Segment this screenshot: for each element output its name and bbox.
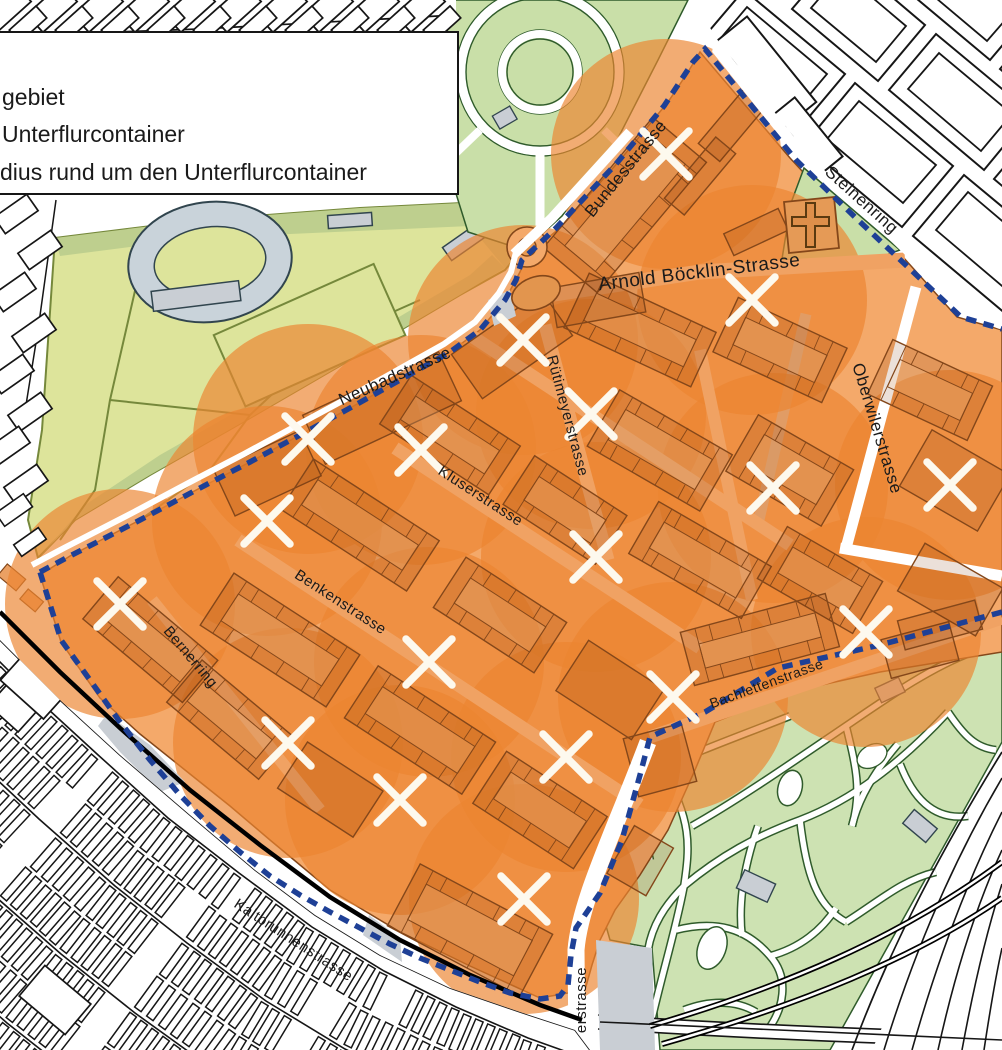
svg-text:erstrasse: erstrasse [573,967,590,1033]
svg-text:Unterflurcontainer: Unterflurcontainer [2,121,185,147]
svg-text:gebiet: gebiet [2,84,65,110]
svg-text:dius rund um den Unterflurcont: dius rund um den Unterflurcontainer [0,159,367,185]
